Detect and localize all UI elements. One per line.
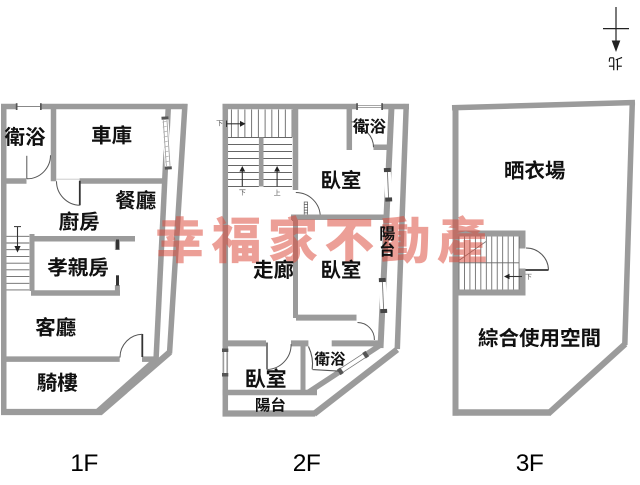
svg-text:3F: 3F [516, 450, 544, 477]
svg-text:1F: 1F [70, 450, 98, 477]
svg-text:2F: 2F [293, 450, 321, 477]
